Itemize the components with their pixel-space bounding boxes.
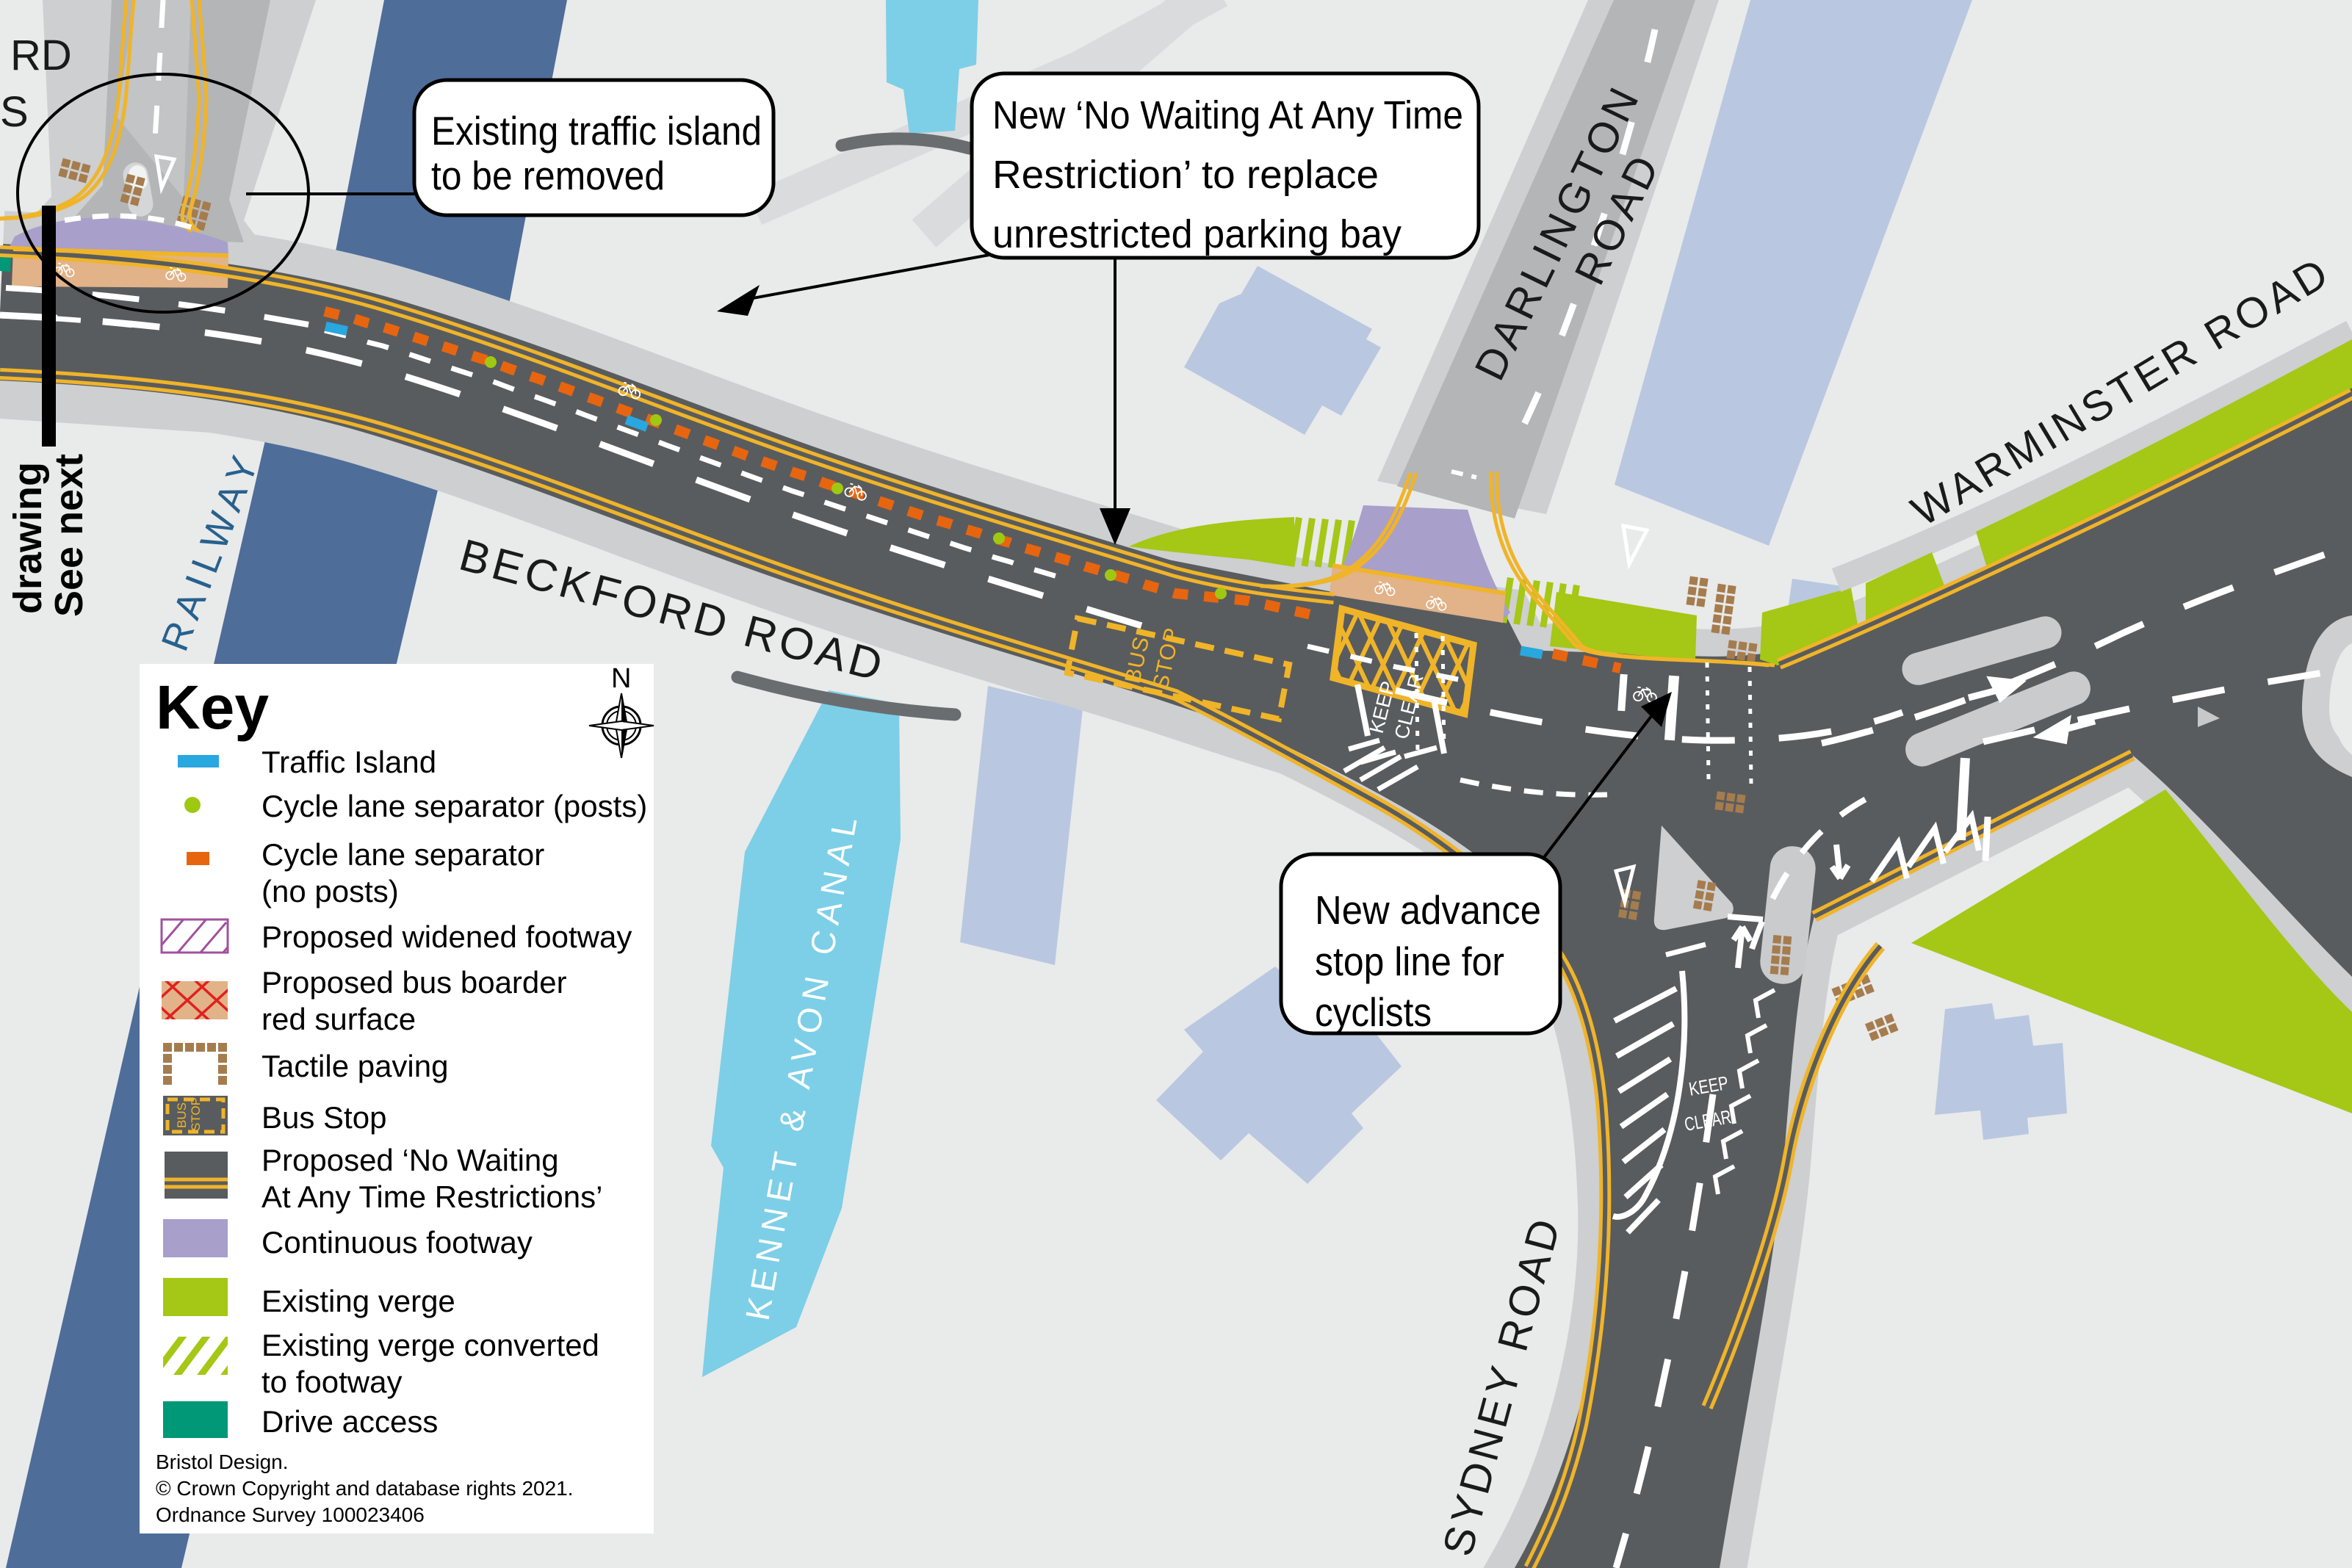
svg-text:Existing traffic island: Existing traffic island [431,108,762,153]
svg-text:Existing verge: Existing verge [261,1284,455,1318]
svg-text:Cycle lane separator: Cycle lane separator [261,837,544,872]
svg-text:Ordnance Survey 100023406: Ordnance Survey 100023406 [156,1503,425,1526]
svg-text:Key: Key [156,673,269,742]
svg-text:Proposed bus boarder: Proposed bus boarder [261,965,567,1000]
svg-text:stop line for: stop line for [1315,939,1504,984]
svg-text:Proposed widened footway: Proposed widened footway [261,920,632,954]
svg-text:Proposed ‘No Waiting: Proposed ‘No Waiting [261,1143,559,1177]
svg-text:Cycle lane separator (posts): Cycle lane separator (posts) [261,789,647,823]
svg-text:Bristol Design.: Bristol Design. [156,1450,289,1473]
svg-text:STOP: STOP [189,1097,203,1131]
svg-text:BUS: BUS [175,1102,189,1128]
svg-text:New ‘No Waiting At Any Time: New ‘No Waiting At Any Time [992,93,1463,137]
svg-text:unrestricted parking bay: unrestricted parking bay [992,212,1402,256]
svg-text:At Any Time Restrictions’: At Any Time Restrictions’ [261,1179,602,1214]
svg-text:cyclists: cyclists [1315,989,1432,1035]
svg-text:S: S [0,88,29,136]
svg-text:(no posts): (no posts) [261,874,399,908]
svg-text:red surface: red surface [261,1002,416,1036]
svg-text:© Crown Copyright and database: © Crown Copyright and database rights 20… [156,1477,574,1500]
svg-text:Continuous footway: Continuous footway [261,1225,533,1260]
svg-text:RD: RD [10,32,72,79]
svg-text:Existing verge converted: Existing verge converted [261,1328,599,1362]
svg-text:New advance: New advance [1315,887,1541,933]
svg-text:Drive access: Drive access [261,1404,438,1439]
svg-text:N: N [611,663,631,694]
svg-text:See next: See next [47,454,91,617]
svg-text:Traffic Island: Traffic Island [261,745,436,779]
svg-text:Restriction’ to replace: Restriction’ to replace [992,153,1379,197]
svg-text:to footway: to footway [261,1365,402,1399]
svg-text:Bus Stop: Bus Stop [261,1100,386,1135]
svg-text:Tactile paving: Tactile paving [261,1049,448,1083]
svg-text:to be removed: to be removed [431,153,665,198]
svg-text:drawing: drawing [6,462,50,614]
